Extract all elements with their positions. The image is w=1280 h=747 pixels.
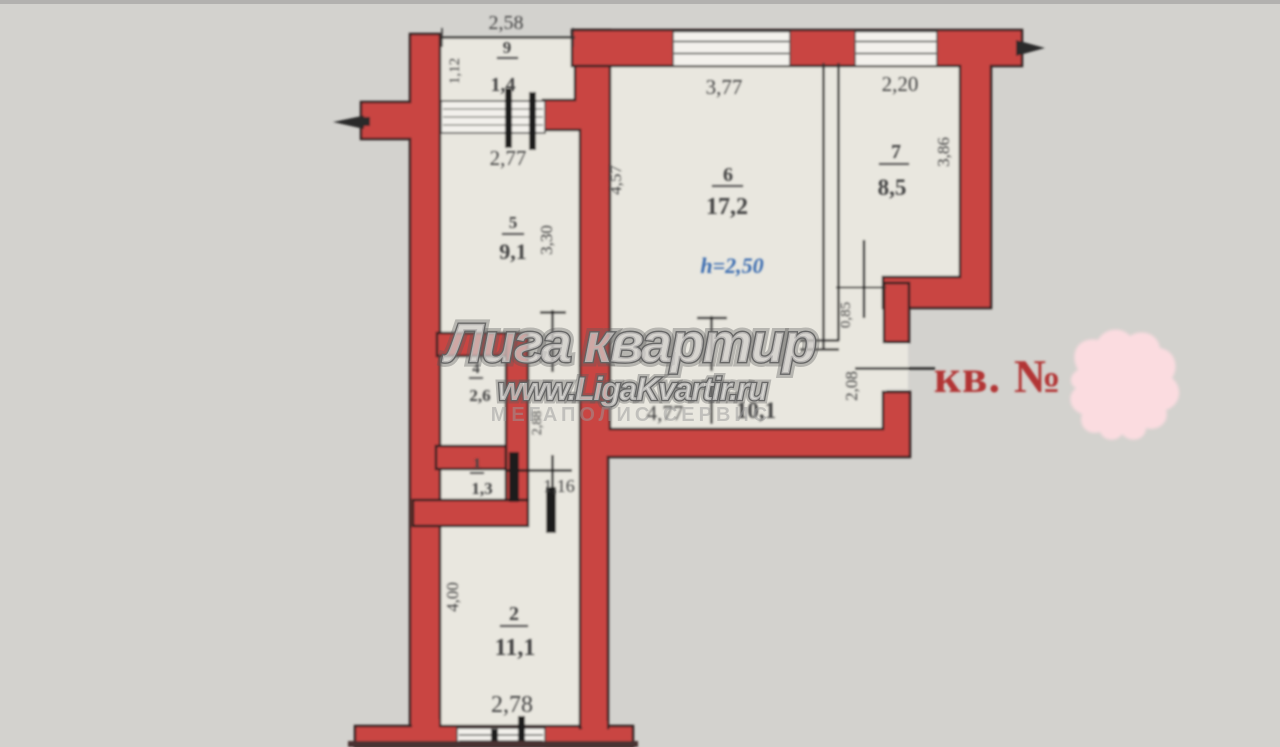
svg-text:3,77: 3,77 — [706, 75, 743, 99]
svg-text:МЕГАПОЛИС СЕРВИС: МЕГАПОЛИС СЕРВИС — [491, 404, 771, 426]
svg-text:1,16: 1,16 — [543, 476, 575, 496]
svg-text:11,1: 11,1 — [495, 635, 536, 661]
svg-text:2,6: 2,6 — [469, 386, 490, 405]
svg-text:h=2,50: h=2,50 — [700, 253, 763, 278]
svg-text:2: 2 — [509, 603, 519, 625]
svg-text:2,08: 2,08 — [842, 371, 861, 401]
svg-text:3,86: 3,86 — [934, 137, 953, 167]
svg-text:9: 9 — [503, 38, 512, 57]
svg-text:6: 6 — [723, 164, 733, 186]
svg-text:5: 5 — [509, 213, 518, 232]
svg-text:17,2: 17,2 — [706, 194, 748, 220]
svg-text:3,30: 3,30 — [537, 225, 556, 255]
svg-text:1: 1 — [473, 456, 481, 472]
svg-text:2,58: 2,58 — [489, 12, 524, 34]
svg-text:0,85: 0,85 — [838, 302, 854, 328]
svg-text:1,4: 1,4 — [491, 74, 516, 96]
svg-text:2,20: 2,20 — [882, 72, 919, 96]
svg-text:2,77: 2,77 — [490, 146, 527, 170]
svg-text:1,3: 1,3 — [471, 479, 492, 498]
svg-text:4,00: 4,00 — [443, 582, 462, 612]
svg-text:1,12: 1,12 — [447, 58, 463, 84]
svg-text:8,5: 8,5 — [878, 175, 907, 200]
svg-text:4,57: 4,57 — [606, 165, 625, 195]
svg-text:кв. №: кв. № — [934, 351, 1062, 403]
svg-text:7: 7 — [891, 141, 901, 163]
svg-text:2,78: 2,78 — [491, 692, 533, 718]
svg-text:www.LigaKvartir.ru: www.LigaKvartir.ru — [498, 371, 767, 407]
svg-text:9,1: 9,1 — [499, 239, 527, 264]
svg-text:Лига квартир: Лига квартир — [441, 311, 815, 374]
